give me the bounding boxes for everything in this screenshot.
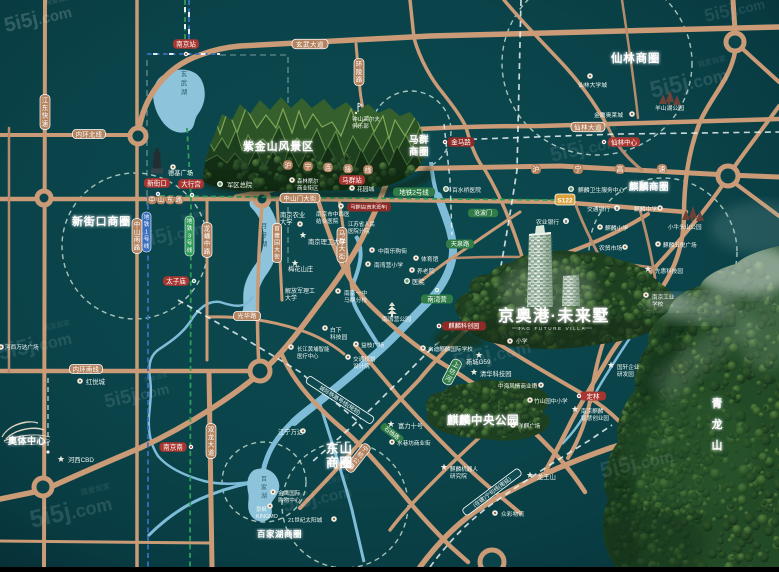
svg-text:东山: 东山: [326, 441, 353, 456]
svg-text:速: 速: [42, 119, 49, 127]
svg-text:武: 武: [181, 78, 188, 87]
svg-text:龙: 龙: [208, 432, 215, 441]
svg-text:快: 快: [42, 111, 49, 120]
svg-text:结合医院: 结合医院: [316, 217, 339, 225]
svg-text:先惠科技园: 先惠科技园: [655, 267, 683, 275]
svg-text:南湾营: 南湾营: [427, 294, 447, 303]
svg-text:龙: 龙: [711, 417, 723, 431]
svg-text:大学: 大学: [280, 217, 293, 226]
svg-text:马群站(首末班车): 马群站(首末班车): [351, 204, 388, 211]
svg-text:南京一中: 南京一中: [344, 289, 367, 297]
svg-text:麒麟商圈: 麒麟商圈: [629, 181, 669, 193]
svg-text:紫金山风景区: 紫金山风景区: [243, 139, 314, 153]
svg-text:接: 接: [345, 164, 352, 173]
svg-text:沪: 沪: [533, 165, 540, 174]
svg-text:水巷坊商业街: 水巷坊商业街: [397, 439, 431, 447]
svg-text:农业银行: 农业银行: [536, 218, 559, 226]
svg-text:金鹰奥莱城: 金鹰奥莱城: [594, 111, 623, 119]
svg-text:湖: 湖: [261, 239, 268, 248]
svg-text:线: 线: [187, 246, 193, 254]
svg-text:学校: 学校: [652, 300, 664, 308]
svg-text:百: 百: [261, 476, 267, 483]
svg-text:江: 江: [42, 96, 49, 104]
svg-text:军区总院: 军区总院: [227, 180, 253, 189]
svg-text:环: 环: [356, 60, 363, 68]
svg-text:南湾营公园: 南湾营公园: [382, 315, 411, 323]
svg-text:设计院: 设计院: [353, 362, 370, 370]
svg-text:竹山园中小学: 竹山园中小学: [534, 397, 568, 405]
svg-text:中山门大街: 中山门大街: [284, 193, 317, 202]
svg-text:河西CBD: 河西CBD: [68, 456, 94, 464]
svg-text:南京理工大学: 南京理工大学: [308, 237, 346, 246]
svg-text:KINGMO: KINGMO: [256, 514, 278, 520]
svg-text:景枫: 景枫: [256, 505, 267, 513]
svg-text:红悦城: 红悦城: [86, 377, 106, 386]
svg-text:南京农业: 南京农业: [280, 210, 305, 219]
svg-text:金马路: 金马路: [451, 137, 471, 146]
svg-text:体育馆: 体育馆: [421, 255, 439, 263]
svg-text:麒麟科创园: 麒麟科创园: [449, 322, 480, 330]
svg-text:湖: 湖: [261, 492, 267, 500]
svg-text:南京站: 南京站: [176, 39, 196, 48]
svg-text:麒麟卫生服务中心: 麒麟卫生服务中心: [578, 186, 625, 194]
svg-text:中: 中: [204, 239, 211, 248]
svg-text:研发园: 研发园: [617, 370, 634, 378]
svg-text:京奥港·未来墅: 京奥港·未来墅: [498, 306, 610, 325]
svg-text:湖: 湖: [181, 87, 188, 96]
svg-text:道: 道: [208, 447, 215, 456]
svg-text:仙林大学城: 仙林大学城: [578, 81, 607, 89]
svg-text:牙: 牙: [261, 231, 268, 239]
svg-text:麒麟中学: 麒麟中学: [634, 205, 657, 213]
svg-text:街: 街: [274, 253, 280, 261]
svg-text:羊山湖公园: 羊山湖公园: [655, 104, 684, 112]
svg-text:清华科技园: 清华科技园: [480, 369, 511, 378]
svg-text:俱乐部: 俱乐部: [352, 122, 369, 130]
svg-text:研究院: 研究院: [450, 472, 467, 480]
svg-text:月: 月: [261, 222, 268, 230]
svg-text:交通银行: 交通银行: [587, 205, 610, 213]
svg-text:东: 东: [42, 103, 49, 112]
svg-text:南京南: 南京南: [163, 442, 183, 451]
svg-text:路: 路: [356, 75, 363, 84]
svg-text:中海风情商业街: 中海风情商业街: [498, 382, 538, 390]
svg-text:麒麟小学: 麒麟小学: [605, 224, 628, 232]
svg-text:南湾营小学: 南湾营小学: [374, 261, 403, 269]
svg-text:白下: 白下: [330, 326, 342, 334]
svg-text:益枝广场: 益枝广场: [361, 341, 384, 349]
svg-text:地: 地: [144, 213, 150, 221]
svg-text:新街口商圈: 新街口商圈: [72, 214, 131, 228]
svg-text:南京工业: 南京工业: [652, 293, 675, 301]
svg-text:百家湖商圈: 百家湖商圈: [257, 529, 302, 539]
svg-text:大: 大: [274, 246, 280, 254]
svg-text:百水桥医院: 百水桥医院: [452, 186, 481, 194]
svg-text:高: 高: [617, 165, 624, 174]
svg-text:大行宫: 大行宫: [181, 179, 201, 188]
svg-text:交通规划: 交通规划: [353, 355, 376, 363]
svg-text:农贸市场: 农贸市场: [599, 244, 622, 252]
svg-text:沧波门: 沧波门: [474, 209, 492, 217]
svg-text:养老院: 养老院: [417, 267, 435, 275]
svg-text:沪: 沪: [285, 160, 292, 169]
svg-text:马群: 马群: [409, 134, 429, 146]
svg-text:大: 大: [208, 440, 215, 449]
svg-text:商圈: 商圈: [326, 455, 353, 470]
svg-text:马群站: 马群站: [342, 175, 362, 184]
svg-text:青: 青: [712, 396, 723, 410]
svg-text:光华路: 光华路: [237, 312, 257, 320]
svg-text:国轩企业: 国轩企业: [617, 363, 640, 371]
svg-text:众彩物流: 众彩物流: [501, 510, 524, 518]
svg-text:麒麟五悦广场: 麒麟五悦广场: [663, 241, 697, 249]
svg-text:中: 中: [149, 196, 155, 204]
svg-text:地铁2号线: 地铁2号线: [399, 187, 429, 196]
svg-text:新街口: 新街口: [147, 178, 167, 187]
svg-text:连: 连: [325, 163, 332, 172]
svg-text:陵: 陵: [356, 67, 363, 76]
svg-text:江宁万达: 江宁万达: [278, 427, 304, 436]
svg-text:麒麟中央公园: 麒麟中央公园: [447, 413, 519, 427]
svg-text:山: 山: [712, 438, 723, 452]
svg-text:小牛头山公园: 小牛头山公园: [668, 223, 702, 231]
svg-text:东: 东: [167, 196, 173, 204]
svg-text:街: 街: [339, 251, 346, 260]
svg-text:奥体中心: 奥体中心: [7, 435, 46, 446]
svg-text:速: 速: [659, 166, 666, 174]
svg-text:科技园: 科技园: [330, 333, 348, 341]
svg-text:双: 双: [208, 425, 215, 433]
svg-text:江苏省人民: 江苏省人民: [348, 220, 375, 228]
svg-text:内环南线: 内环南线: [73, 364, 100, 373]
svg-text:家: 家: [261, 484, 267, 492]
svg-text:长江黄埔智能: 长江黄埔智能: [297, 345, 330, 353]
svg-text:麒麟机器人: 麒麟机器人: [450, 465, 478, 473]
svg-text:宁: 宁: [575, 165, 582, 174]
svg-text:内环北线: 内环北线: [76, 129, 103, 138]
svg-text:智慧创业园: 智慧创业园: [581, 414, 609, 422]
svg-text:宁: 宁: [305, 162, 312, 171]
svg-text:路: 路: [176, 196, 183, 204]
svg-text:医院分院: 医院分院: [348, 227, 370, 235]
svg-text:21世纪太阳城: 21世纪太阳城: [288, 516, 323, 524]
svg-text:马群分校: 马群分校: [344, 296, 367, 304]
svg-text:路: 路: [204, 246, 211, 255]
svg-text:南京麒麟: 南京麒麟: [581, 407, 604, 415]
svg-text:天泉路: 天泉路: [451, 240, 470, 248]
svg-text:洋麒广场: 洋麒广场: [518, 422, 541, 430]
svg-text:园: 园: [274, 240, 280, 247]
svg-text:太子庙: 太子庙: [166, 276, 186, 285]
svg-text:中: 中: [134, 219, 141, 228]
svg-text:大学: 大学: [285, 294, 297, 302]
svg-text:蓿: 蓿: [274, 232, 280, 240]
svg-text:医院: 医院: [412, 277, 425, 286]
svg-text:商业街区: 商业街区: [297, 184, 319, 192]
svg-text:马: 马: [339, 229, 346, 237]
svg-text:S122: S122: [557, 198, 573, 205]
svg-text:商圈: 商圈: [409, 146, 429, 158]
svg-text:富力十号: 富力十号: [398, 421, 423, 430]
svg-text:德基广场: 德基广场: [168, 168, 193, 177]
svg-text:解放军理工: 解放军理工: [285, 287, 315, 295]
svg-text:龙王山: 龙王山: [537, 472, 556, 481]
svg-text:医疗中心: 医疗中心: [297, 352, 319, 360]
svg-text:森林摩尔: 森林摩尔: [297, 177, 319, 185]
svg-text:玄武大道: 玄武大道: [296, 39, 324, 48]
svg-text:梅花山庄: 梅花山庄: [288, 264, 313, 273]
svg-text:玄: 玄: [181, 69, 188, 78]
svg-text:线: 线: [365, 165, 372, 174]
svg-text:山: 山: [158, 196, 164, 204]
svg-text:钟山高尔夫: 钟山高尔夫: [352, 115, 380, 123]
svg-text:定林: 定林: [587, 391, 601, 400]
svg-text:花园城: 花园城: [357, 185, 375, 193]
svg-text:南京市中西医: 南京市中西医: [316, 210, 350, 218]
svg-text:中南乐购街: 中南乐购街: [378, 247, 407, 255]
svg-text:仙林商圈: 仙林商圈: [611, 51, 660, 65]
